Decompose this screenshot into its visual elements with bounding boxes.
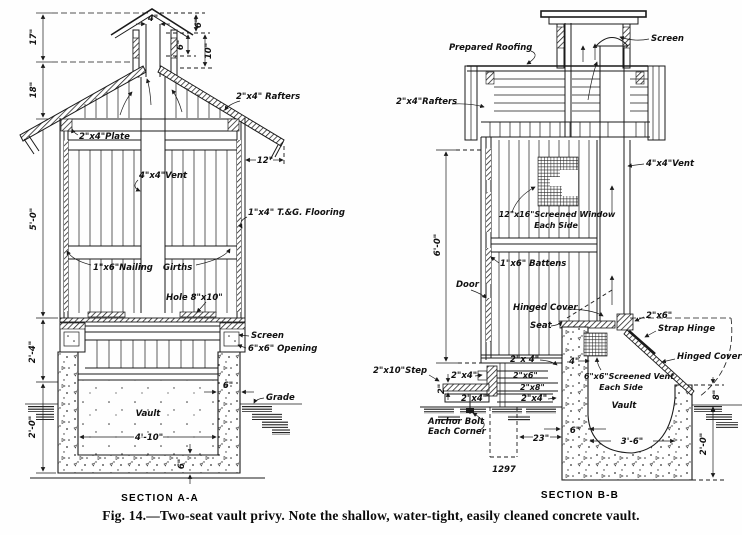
bb-anchor-label-2: Each Corner [428, 427, 487, 437]
aa-floor [60, 312, 245, 322]
aa-riser [60, 323, 245, 380]
aa-plate-label: 2"x4"Plate [79, 132, 130, 142]
bb-door-label: Door [456, 280, 480, 290]
aa-gable-boards [85, 80, 220, 118]
bb-roof [465, 23, 665, 140]
section-aa-title: SECTION A-A [121, 493, 199, 504]
aa-dim-6b: 6" [176, 40, 186, 50]
aa-dim-12: 12" [257, 156, 273, 166]
bb-step-label: 2"x10"Step [373, 366, 427, 376]
aa-rafters-label: 2"x4" Rafters [236, 92, 300, 102]
bb-dim-23: 23" [533, 434, 549, 444]
aa-screen-label: Screen [251, 331, 284, 341]
aa-dim-4: 4" [147, 14, 158, 24]
bb-hinged-cover-rear-label: Hinged Cover [677, 352, 742, 362]
aa-dim-2-4: 2'-4" [28, 341, 38, 363]
bb-joist-2x4-label: 2"x 4" [510, 355, 539, 365]
figure-caption-text: —Two-seat vault privy. Note the shallow,… [146, 508, 640, 523]
aa-walls [60, 77, 245, 322]
aa-vent-label: 4"x4"Vent [138, 171, 188, 181]
bb-bot-2x4b-label: 2"x4" [521, 394, 547, 404]
bb-dim-8: 8" [712, 390, 722, 400]
aa-dim-18: 18" [29, 82, 39, 98]
aa-girths-label: Girths [163, 263, 192, 273]
bb-screen-label: Screen [651, 34, 684, 44]
aa-dim-6a: 6" [194, 18, 204, 28]
bb-dim-step2: 2" [437, 384, 447, 394]
bb-bot-2x4a-label: 2"x4" [461, 394, 487, 404]
bb-anchor-label-1: Anchor Bolt [427, 417, 485, 427]
aa-flooring-label: 1"x4" T.&G. Flooring [248, 208, 345, 218]
aa-opening-label: 6"x6" Opening [248, 344, 317, 354]
bb-sill-2x8-label: 2"x8" [520, 383, 545, 392]
bb-vent6-label-1: 6"x6"Screened Vent [584, 372, 675, 381]
bb-vault-label: Vault [612, 401, 638, 411]
bb-vent6-label-2: Each Side [599, 383, 643, 392]
bb-dim-6-0: 6'-0" [433, 234, 443, 256]
figure-caption: Fig. 14.—Two-seat vault privy. Note the … [0, 508, 742, 524]
bb-strap-hinge-label: Strap Hinge [658, 324, 715, 334]
aa-hole-label: Hole 8"x10" [166, 293, 223, 303]
bb-window [538, 157, 578, 206]
bb-dim-3-6: 3'-6" [621, 437, 643, 447]
section-aa-drawing: 17" 18" 5'-0" 2'-4" 2'-0" 4" 6" 6" 10" [20, 9, 345, 504]
aa-dim-wall6: 6" [223, 381, 233, 391]
bb-roofing-label: Prepared Roofing [449, 43, 532, 53]
bb-vent-label: 4"x4"Vent [645, 159, 695, 169]
aa-dim-4-10: 4'-10" [134, 433, 163, 443]
bb-dim-2-0: 2'-0" [699, 433, 709, 455]
aa-vault-label: Vault [136, 409, 162, 419]
bb-rafters-label: 2"x4"Rafters [396, 97, 457, 107]
aa-nailing-label: 1"x6"Nailing [93, 263, 153, 273]
bb-hinge-2x6-label: 2"x6" [646, 311, 672, 321]
aa-grade-label: Grade [266, 393, 295, 403]
aa-dim-slab6: 6" [177, 459, 187, 469]
privy-drawing: 17" 18" 5'-0" 2'-4" 2'-0" 4" 6" 6" 10" [0, 0, 742, 535]
aa-vault [25, 352, 302, 484]
bb-dim-pier6: 6" [570, 426, 580, 436]
aa-dim-10: 10" [204, 43, 214, 59]
section-bb-title: SECTION B-B [541, 490, 619, 501]
aa-dim-17: 17" [29, 29, 39, 45]
bb-sill-2x6-label: 2"x6" [513, 371, 538, 380]
bb-dim-seat4: 4" [568, 357, 579, 367]
bb-window-label-2: Each Side [534, 221, 578, 230]
bb-hinged-cover-seat-label: Hinged Cover [513, 303, 578, 313]
bb-plate-number: 1297 [492, 465, 516, 475]
section-bb-drawing: Screen Prepared Roofing 2"x4"Rafters [373, 11, 742, 501]
bb-window-label-1: 12"x16"Screened Window [499, 210, 616, 219]
figure-number: Fig. 14. [102, 508, 146, 523]
aa-dim-5-0: 5'-0" [29, 208, 39, 230]
bb-battens-label: 1"x6" Battens [500, 259, 566, 269]
bb-seat-label: Seat [530, 321, 553, 331]
bb-sill-2x4-label: 2"x4" [451, 371, 477, 381]
figure-page: 17" 18" 5'-0" 2'-4" 2'-0" 4" 6" 6" 10" [0, 0, 742, 535]
